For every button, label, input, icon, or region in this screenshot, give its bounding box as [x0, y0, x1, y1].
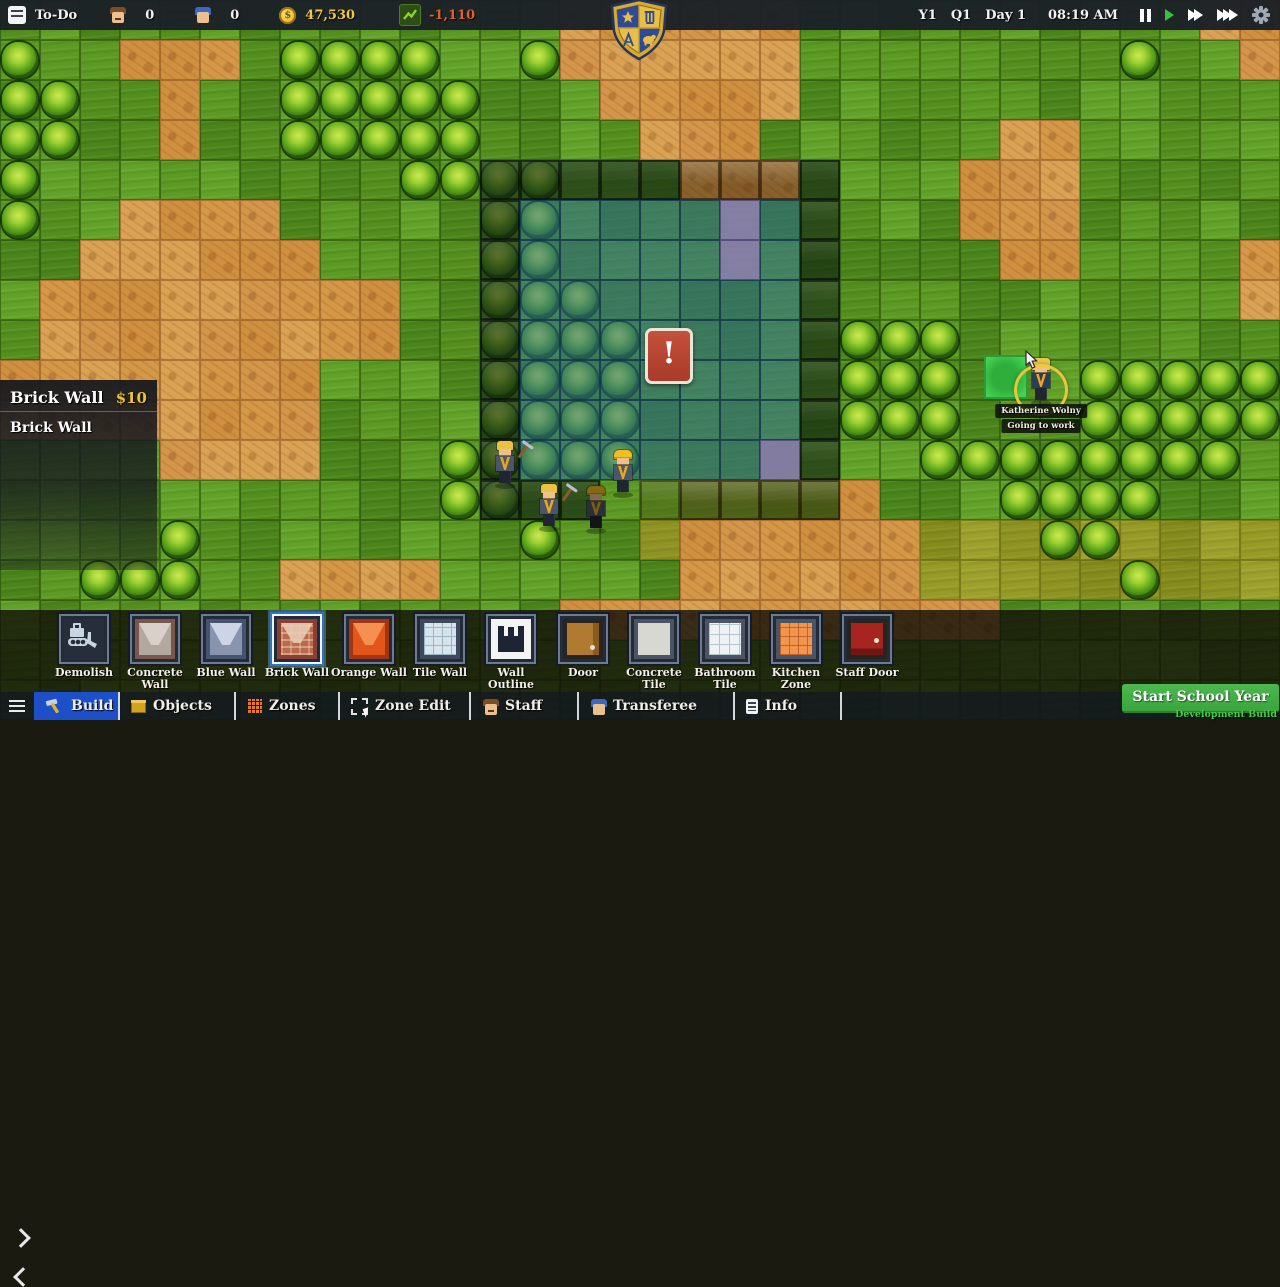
map-tile[interactable]: [0, 200, 40, 240]
map-tile[interactable]: [1120, 440, 1160, 480]
map-tile[interactable]: [360, 80, 400, 120]
toolbar-item-door[interactable]: Door: [548, 614, 618, 679]
map-tile[interactable]: [1200, 440, 1240, 480]
map-tile[interactable]: [400, 560, 440, 600]
tab-build[interactable]: Build: [34, 692, 120, 720]
map-tile[interactable]: [280, 120, 320, 160]
map-tile[interactable]: [1080, 480, 1120, 520]
toolbar-item-concrete-wall[interactable]: Concrete Wall: [120, 614, 190, 691]
map-tile[interactable]: [480, 320, 520, 360]
map-tile[interactable]: [960, 520, 1000, 560]
map-tile[interactable]: [320, 520, 360, 560]
map-tile[interactable]: [720, 360, 760, 400]
map-tile[interactable]: [240, 40, 280, 80]
map-tile[interactable]: [680, 440, 720, 480]
map-tile[interactable]: [960, 200, 1000, 240]
map-tile[interactable]: [480, 80, 520, 120]
toolbar-scroll-left-icon[interactable]: [13, 1267, 33, 1287]
map-tile[interactable]: [520, 80, 560, 120]
map-tile[interactable]: [1160, 160, 1200, 200]
map-tile[interactable]: [1080, 320, 1120, 360]
map-tile[interactable]: [400, 120, 440, 160]
map-tile[interactable]: [800, 440, 840, 480]
worker-character[interactable]: [536, 484, 562, 530]
map-tile[interactable]: [80, 40, 120, 80]
map-tile[interactable]: [200, 360, 240, 400]
toolbar-scroll-right-icon[interactable]: [11, 1228, 31, 1248]
map-tile[interactable]: [320, 400, 360, 440]
map-tile[interactable]: [40, 320, 80, 360]
map-tile[interactable]: [680, 280, 720, 320]
map-tile[interactable]: [840, 240, 880, 280]
map-tile[interactable]: [160, 200, 200, 240]
map-tile[interactable]: [560, 160, 600, 200]
map-tile[interactable]: [800, 320, 840, 360]
map-tile[interactable]: [120, 280, 160, 320]
map-tile[interactable]: [840, 280, 880, 320]
map-tile[interactable]: [1080, 520, 1120, 560]
map-tile[interactable]: [160, 480, 200, 520]
map-tile[interactable]: [40, 280, 80, 320]
map-tile[interactable]: [1160, 120, 1200, 160]
map-tile[interactable]: [400, 40, 440, 80]
map-tile[interactable]: [1160, 320, 1200, 360]
map-tile[interactable]: [880, 480, 920, 520]
toolbar-item-concrete-tile[interactable]: Concrete Tile: [619, 614, 689, 691]
map-tile[interactable]: [760, 480, 800, 520]
map-tile[interactable]: [200, 240, 240, 280]
toolbar-item-staff-door[interactable]: Staff Door: [832, 614, 902, 679]
map-tile[interactable]: [880, 280, 920, 320]
map-tile[interactable]: [840, 400, 880, 440]
map-tile[interactable]: [600, 280, 640, 320]
map-tile[interactable]: [840, 360, 880, 400]
map-tile[interactable]: [440, 400, 480, 440]
map-tile[interactable]: [0, 80, 40, 120]
map-tile[interactable]: [1040, 320, 1080, 360]
map-tile[interactable]: [560, 200, 600, 240]
map-tile[interactable]: [760, 120, 800, 160]
map-tile[interactable]: [280, 280, 320, 320]
map-tile[interactable]: [240, 400, 280, 440]
map-tile[interactable]: [800, 480, 840, 520]
map-tile[interactable]: [720, 240, 760, 280]
map-tile[interactable]: [1120, 160, 1160, 200]
map-tile[interactable]: [1160, 440, 1200, 480]
map-tile[interactable]: [640, 560, 680, 600]
map-tile[interactable]: [1160, 480, 1200, 520]
map-tile[interactable]: [360, 360, 400, 400]
map-tile[interactable]: [800, 520, 840, 560]
map-tile[interactable]: [1040, 160, 1080, 200]
map-tile[interactable]: [440, 40, 480, 80]
map-tile[interactable]: [320, 160, 360, 200]
map-tile[interactable]: [160, 280, 200, 320]
map-tile[interactable]: [400, 160, 440, 200]
map-tile[interactable]: [120, 160, 160, 200]
map-tile[interactable]: [880, 40, 920, 80]
map-tile[interactable]: [760, 40, 800, 80]
map-tile[interactable]: [320, 200, 360, 240]
map-tile[interactable]: [280, 520, 320, 560]
map-tile[interactable]: [1160, 560, 1200, 600]
toolbar-item-kitchen-zone[interactable]: Kitchen Zone: [761, 614, 831, 691]
map-tile[interactable]: [1160, 520, 1200, 560]
map-tile[interactable]: [160, 440, 200, 480]
map-tile[interactable]: [640, 160, 680, 200]
map-tile[interactable]: [560, 400, 600, 440]
map-tile[interactable]: [240, 240, 280, 280]
map-tile[interactable]: [400, 280, 440, 320]
map-tile[interactable]: [1040, 480, 1080, 520]
map-tile[interactable]: [680, 200, 720, 240]
map-tile[interactable]: [200, 120, 240, 160]
map-tile[interactable]: [720, 280, 760, 320]
map-tile[interactable]: [440, 240, 480, 280]
map-tile[interactable]: [360, 280, 400, 320]
map-tile[interactable]: [280, 80, 320, 120]
map-tile[interactable]: [560, 120, 600, 160]
toolbar-item-wall-outline[interactable]: Wall Outline: [476, 614, 546, 691]
map-tile[interactable]: [40, 40, 80, 80]
map-tile[interactable]: [440, 320, 480, 360]
map-tile[interactable]: [200, 560, 240, 600]
map-tile[interactable]: [1040, 440, 1080, 480]
map-tile[interactable]: [920, 280, 960, 320]
map-tile[interactable]: [920, 240, 960, 280]
map-tile[interactable]: [720, 520, 760, 560]
tab-staff[interactable]: Staff: [471, 692, 579, 720]
map-tile[interactable]: [440, 360, 480, 400]
map-tile[interactable]: [920, 120, 960, 160]
map-tile[interactable]: [1160, 360, 1200, 400]
map-tile[interactable]: [1160, 280, 1200, 320]
map-tile[interactable]: [480, 200, 520, 240]
map-tile[interactable]: [160, 120, 200, 160]
map-tile[interactable]: [560, 280, 600, 320]
map-tile[interactable]: [200, 320, 240, 360]
map-tile[interactable]: [200, 400, 240, 440]
map-tile[interactable]: [400, 520, 440, 560]
map-tile[interactable]: [760, 80, 800, 120]
map-tile[interactable]: [720, 120, 760, 160]
map-tile[interactable]: [1240, 160, 1280, 200]
map-tile[interactable]: [240, 320, 280, 360]
map-tile[interactable]: [960, 440, 1000, 480]
map-tile[interactable]: [160, 320, 200, 360]
map-tile[interactable]: [440, 440, 480, 480]
map-tile[interactable]: [1120, 80, 1160, 120]
map-tile[interactable]: [360, 120, 400, 160]
map-tile[interactable]: [360, 200, 400, 240]
map-tile[interactable]: [120, 200, 160, 240]
map-tile[interactable]: [1120, 480, 1160, 520]
map-tile[interactable]: [1080, 440, 1120, 480]
map-tile[interactable]: [1200, 400, 1240, 440]
map-tile[interactable]: [360, 520, 400, 560]
map-tile[interactable]: [1000, 240, 1040, 280]
map-tile[interactable]: [1160, 400, 1200, 440]
map-tile[interactable]: [960, 480, 1000, 520]
map-tile[interactable]: [1200, 560, 1240, 600]
map-tile[interactable]: [840, 160, 880, 200]
map-tile[interactable]: [240, 360, 280, 400]
map-tile[interactable]: [160, 80, 200, 120]
map-tile[interactable]: [1120, 320, 1160, 360]
map-tile[interactable]: [360, 400, 400, 440]
map-tile[interactable]: [160, 520, 200, 560]
map-tile[interactable]: [480, 120, 520, 160]
map-tile[interactable]: [440, 560, 480, 600]
map-tile[interactable]: [760, 160, 800, 200]
map-tile[interactable]: [40, 80, 80, 120]
map-tile[interactable]: [920, 400, 960, 440]
map-tile[interactable]: [1160, 200, 1200, 240]
map-tile[interactable]: [520, 160, 560, 200]
map-tile[interactable]: [1240, 520, 1280, 560]
map-tile[interactable]: [1240, 400, 1280, 440]
map-tile[interactable]: [880, 320, 920, 360]
map-tile[interactable]: [680, 240, 720, 280]
map-tile[interactable]: [880, 80, 920, 120]
map-tile[interactable]: [520, 40, 560, 80]
map-tile[interactable]: [0, 160, 40, 200]
map-tile[interactable]: [1040, 520, 1080, 560]
map-tile[interactable]: [160, 160, 200, 200]
map-tile[interactable]: [520, 240, 560, 280]
map-tile[interactable]: [80, 80, 120, 120]
map-tile[interactable]: [240, 520, 280, 560]
map-tile[interactable]: [120, 320, 160, 360]
map-tile[interactable]: [320, 440, 360, 480]
map-tile[interactable]: [1120, 120, 1160, 160]
map-tile[interactable]: [1040, 120, 1080, 160]
map-tile[interactable]: [1040, 200, 1080, 240]
map-tile[interactable]: [1240, 320, 1280, 360]
map-tile[interactable]: [920, 560, 960, 600]
map-tile[interactable]: [320, 320, 360, 360]
todo-button[interactable]: To-Do: [0, 6, 77, 24]
map-tile[interactable]: [680, 560, 720, 600]
map-tile[interactable]: [680, 520, 720, 560]
worker-character[interactable]: [583, 486, 609, 532]
map-tile[interactable]: [1080, 40, 1120, 80]
menu-button[interactable]: [0, 692, 34, 720]
map-tile[interactable]: [1080, 200, 1120, 240]
map-tile[interactable]: [80, 120, 120, 160]
map-tile[interactable]: [840, 520, 880, 560]
map-tile[interactable]: [720, 40, 760, 80]
map-tile[interactable]: [760, 440, 800, 480]
map-tile[interactable]: [680, 80, 720, 120]
map-tile[interactable]: [600, 200, 640, 240]
map-tile[interactable]: [1080, 560, 1120, 600]
map-tile[interactable]: [800, 80, 840, 120]
map-tile[interactable]: [520, 280, 560, 320]
map-tile[interactable]: [520, 200, 560, 240]
map-tile[interactable]: [720, 480, 760, 520]
map-tile[interactable]: [760, 280, 800, 320]
map-tile[interactable]: [1040, 240, 1080, 280]
map-tile[interactable]: [1000, 440, 1040, 480]
map-tile[interactable]: [80, 160, 120, 200]
map-tile[interactable]: [1080, 120, 1120, 160]
map-tile[interactable]: [1240, 360, 1280, 400]
map-tile[interactable]: [840, 80, 880, 120]
map-tile[interactable]: [1000, 560, 1040, 600]
map-tile[interactable]: [160, 40, 200, 80]
map-tile[interactable]: [1160, 80, 1200, 120]
map-tile[interactable]: [400, 240, 440, 280]
map-tile[interactable]: [280, 160, 320, 200]
map-tile[interactable]: [1120, 200, 1160, 240]
map-tile[interactable]: [440, 280, 480, 320]
map-tile[interactable]: [600, 400, 640, 440]
map-tile[interactable]: [240, 560, 280, 600]
map-tile[interactable]: [440, 160, 480, 200]
map-tile[interactable]: [400, 320, 440, 360]
map-tile[interactable]: [360, 40, 400, 80]
toolbar-item-orange-wall[interactable]: Orange Wall: [334, 614, 404, 679]
map-tile[interactable]: [1000, 480, 1040, 520]
map-tile[interactable]: [960, 280, 1000, 320]
map-tile[interactable]: [280, 400, 320, 440]
worker-character[interactable]: [610, 450, 636, 496]
toolbar-item-blue-wall[interactable]: Blue Wall: [191, 614, 261, 679]
map-tile[interactable]: [680, 160, 720, 200]
map-tile[interactable]: [120, 240, 160, 280]
map-tile[interactable]: [920, 320, 960, 360]
map-tile[interactable]: [920, 160, 960, 200]
fast-forward-button[interactable]: [1188, 9, 1203, 21]
map-tile[interactable]: [960, 560, 1000, 600]
map-tile[interactable]: [600, 320, 640, 360]
map-tile[interactable]: [440, 120, 480, 160]
map-tile[interactable]: [1000, 160, 1040, 200]
map-tile[interactable]: [240, 80, 280, 120]
map-tile[interactable]: [600, 240, 640, 280]
map-tile[interactable]: [680, 400, 720, 440]
map-tile[interactable]: [320, 560, 360, 600]
map-tile[interactable]: [440, 480, 480, 520]
map-tile[interactable]: [1240, 560, 1280, 600]
map-tile[interactable]: [200, 160, 240, 200]
map-tile[interactable]: [720, 80, 760, 120]
map-tile[interactable]: [840, 120, 880, 160]
map-tile[interactable]: [600, 560, 640, 600]
teacher-counter[interactable]: 0: [109, 6, 154, 24]
map-tile[interactable]: [240, 200, 280, 240]
map-tile[interactable]: [840, 440, 880, 480]
map-tile[interactable]: [1240, 240, 1280, 280]
map-tile[interactable]: [360, 160, 400, 200]
map-tile[interactable]: [1040, 280, 1080, 320]
map-tile[interactable]: [1000, 80, 1040, 120]
map-tile[interactable]: [480, 400, 520, 440]
map-tile[interactable]: [400, 200, 440, 240]
map-tile[interactable]: [40, 120, 80, 160]
map-tile[interactable]: [40, 200, 80, 240]
map-tile[interactable]: [760, 360, 800, 400]
map-tile[interactable]: [320, 120, 360, 160]
map-tile[interactable]: [880, 160, 920, 200]
map-tile[interactable]: [1040, 80, 1080, 120]
map-tile[interactable]: [280, 40, 320, 80]
fastest-forward-button[interactable]: [1217, 9, 1238, 21]
map-tile[interactable]: [280, 240, 320, 280]
settings-gear-icon[interactable]: [1252, 6, 1270, 24]
map-tile[interactable]: [1200, 40, 1240, 80]
finance-delta-display[interactable]: -1,110: [399, 4, 475, 26]
map-tile[interactable]: [680, 40, 720, 80]
map-tile[interactable]: [480, 160, 520, 200]
map-tile[interactable]: [1080, 160, 1120, 200]
map-tile[interactable]: [880, 440, 920, 480]
map-tile[interactable]: [800, 120, 840, 160]
map-tile[interactable]: [600, 120, 640, 160]
map-tile[interactable]: [760, 240, 800, 280]
map-tile[interactable]: [600, 360, 640, 400]
map-tile[interactable]: [720, 560, 760, 600]
map-tile[interactable]: [400, 400, 440, 440]
map-tile[interactable]: [80, 280, 120, 320]
map-tile[interactable]: [920, 80, 960, 120]
map-tile[interactable]: [1200, 240, 1240, 280]
map-tile[interactable]: [840, 320, 880, 360]
map-tile[interactable]: [0, 320, 40, 360]
map-tile[interactable]: [440, 80, 480, 120]
map-tile[interactable]: [320, 240, 360, 280]
map-tile[interactable]: [200, 480, 240, 520]
map-tile[interactable]: [1000, 520, 1040, 560]
map-tile[interactable]: [1000, 120, 1040, 160]
map-tile[interactable]: [360, 320, 400, 360]
map-tile[interactable]: [680, 480, 720, 520]
map-tile[interactable]: [400, 440, 440, 480]
map-tile[interactable]: [1200, 320, 1240, 360]
map-tile[interactable]: [120, 40, 160, 80]
worker-character[interactable]: [492, 441, 518, 487]
map-tile[interactable]: [680, 120, 720, 160]
map-tile[interactable]: [480, 520, 520, 560]
map-tile[interactable]: [200, 40, 240, 80]
map-tile[interactable]: [280, 360, 320, 400]
map-tile[interactable]: [520, 120, 560, 160]
map-tile[interactable]: [120, 120, 160, 160]
map-tile[interactable]: [1000, 280, 1040, 320]
map-tile[interactable]: [480, 360, 520, 400]
map-tile[interactable]: [1120, 40, 1160, 80]
map-tile[interactable]: [1080, 80, 1120, 120]
map-tile[interactable]: [640, 280, 680, 320]
map-tile[interactable]: [80, 240, 120, 280]
map-tile[interactable]: [1120, 240, 1160, 280]
map-tile[interactable]: [1080, 360, 1120, 400]
map-tile[interactable]: [360, 560, 400, 600]
map-tile[interactable]: [960, 400, 1000, 440]
money-display[interactable]: $ 47,530: [279, 7, 355, 24]
map-tile[interactable]: [1240, 120, 1280, 160]
map-tile[interactable]: [80, 320, 120, 360]
map-tile[interactable]: [240, 120, 280, 160]
map-tile[interactable]: [800, 280, 840, 320]
map-tile[interactable]: [1120, 400, 1160, 440]
map-tile[interactable]: [400, 480, 440, 520]
map-tile[interactable]: [800, 360, 840, 400]
map-tile[interactable]: [0, 240, 40, 280]
map-tile[interactable]: [400, 80, 440, 120]
map-tile[interactable]: [1240, 480, 1280, 520]
